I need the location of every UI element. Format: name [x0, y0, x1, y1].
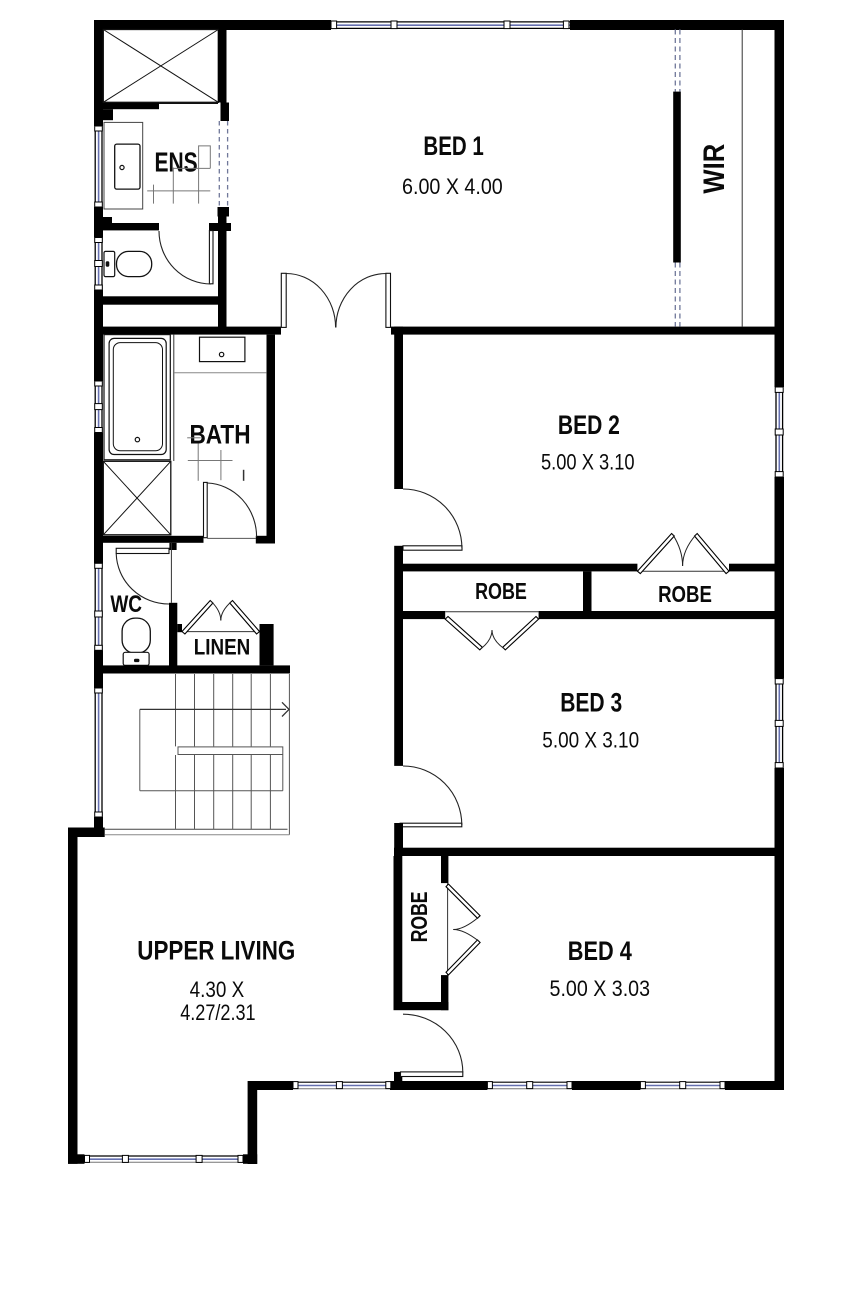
svg-text:BED 3: BED 3	[560, 687, 622, 717]
svg-text:LINEN: LINEN	[194, 635, 251, 660]
svg-text:BED 4: BED 4	[568, 936, 632, 966]
svg-text:BED 1: BED 1	[423, 131, 483, 161]
svg-text:5.00 X 3.10: 5.00 X 3.10	[541, 450, 635, 475]
svg-text:5.00 X 3.10: 5.00 X 3.10	[542, 728, 639, 753]
svg-text:ENS: ENS	[155, 146, 198, 177]
svg-text:4.30 X: 4.30 X	[190, 977, 245, 1002]
svg-text:6.00 X 4.00: 6.00 X 4.00	[402, 174, 503, 199]
svg-text:BED 2: BED 2	[558, 410, 620, 440]
svg-text:WIR: WIR	[698, 144, 731, 194]
svg-text:4.27/2.31: 4.27/2.31	[180, 1000, 255, 1025]
svg-text:ROBE: ROBE	[406, 892, 432, 943]
svg-text:ROBE: ROBE	[658, 581, 712, 607]
svg-text:UPPER LIVING: UPPER LIVING	[137, 935, 295, 965]
svg-text:5.00 X 3.03: 5.00 X 3.03	[550, 976, 651, 1001]
svg-text:WC: WC	[110, 591, 142, 618]
svg-text:ROBE: ROBE	[475, 578, 527, 604]
